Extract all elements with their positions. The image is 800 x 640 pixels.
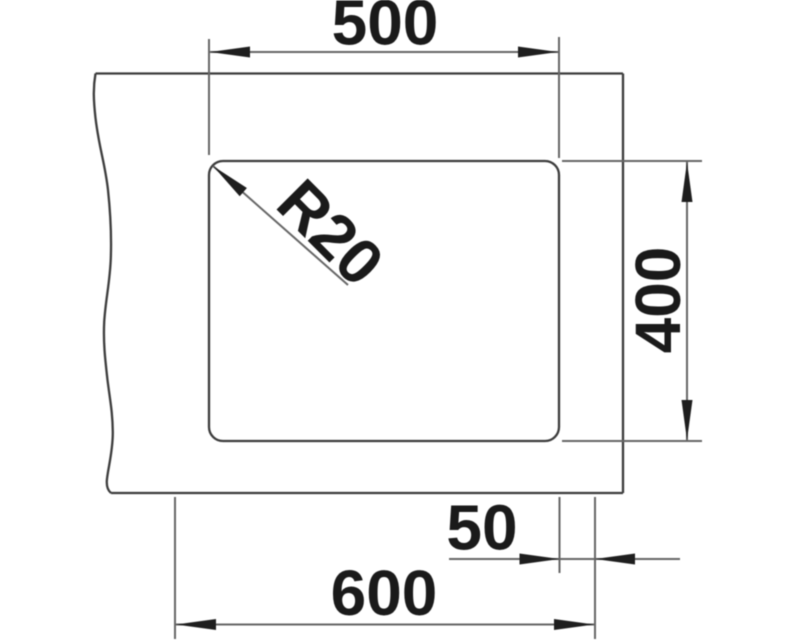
- svg-text:R20: R20: [264, 165, 398, 299]
- svg-text:500: 500: [332, 0, 439, 59]
- svg-text:50: 50: [446, 492, 517, 564]
- svg-text:400: 400: [622, 247, 694, 354]
- svg-text:600: 600: [331, 557, 438, 629]
